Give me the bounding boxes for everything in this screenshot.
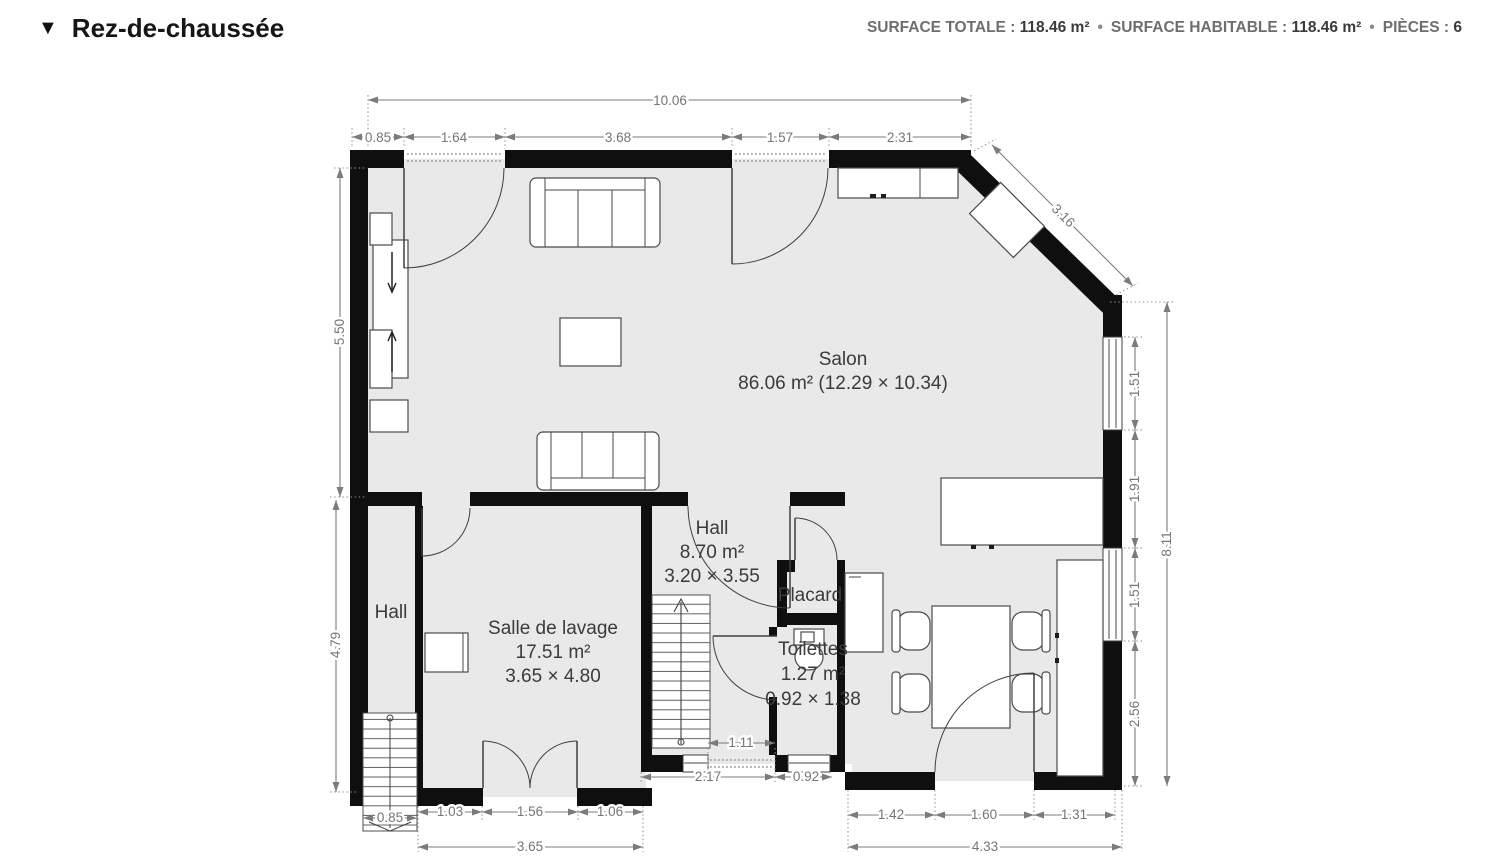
dim-top-2: 1.64: [441, 130, 468, 145]
stat-separator: •: [1369, 19, 1374, 37]
dim-br-total: 4.33: [972, 839, 998, 854]
salon-label: Salon: [819, 349, 868, 370]
dim-right-3: 1.51: [1127, 582, 1142, 608]
toilettes-area: 1.27 m²: [781, 664, 845, 685]
dim-notch-1: 1.11: [728, 735, 753, 750]
dim-top-1: 0.85: [365, 130, 391, 145]
dining-table: [932, 606, 1010, 728]
dim-br-3: 1.31: [1061, 807, 1087, 822]
dim-br-1: 1.42: [878, 807, 904, 822]
salon-details: 86.06 m² (12.29 × 10.34): [738, 373, 948, 394]
dim-bl-3: 1.06: [597, 804, 623, 819]
dim-top-4: 1.57: [767, 130, 793, 145]
dim-br-2: 1.60: [971, 807, 997, 822]
dim-right-2: 1.91: [1127, 476, 1142, 502]
fridge-column: [845, 573, 883, 652]
staircase-central: [652, 595, 710, 748]
stat-pieces: PIÈCES : 6: [1383, 19, 1462, 37]
collapse-triangle-icon[interactable]: ▼: [38, 18, 58, 38]
window-right-lower: [1103, 548, 1122, 641]
dim-right-total: 8.11: [1159, 531, 1174, 556]
page-title: Rez-de-chaussée: [72, 13, 284, 44]
plan-title-group: ▼ Rez-de-chaussée: [38, 13, 284, 44]
window-right-upper: [1103, 337, 1122, 430]
dim-notch-2: 2.17: [695, 769, 721, 784]
kitchen-counter-top: [838, 168, 958, 198]
dim-bl-1: 1.03: [437, 804, 463, 819]
washer: [425, 633, 468, 672]
surface-stats: SURFACE TOTALE : 118.46 m² • SURFACE HAB…: [867, 19, 1462, 37]
hall-center-size: 3.20 × 3.55: [664, 566, 760, 587]
dim-top-3: 3.68: [605, 130, 631, 145]
coffee-table: [560, 318, 621, 366]
hall-center-area: 8.70 m²: [680, 542, 744, 563]
dim-stair: 0.85: [377, 810, 403, 825]
toilettes-label: Toilettes: [778, 639, 848, 660]
stat-separator: •: [1097, 19, 1102, 37]
laundry-area: 17.51 m²: [516, 642, 591, 663]
dim-right-4: 2.56: [1127, 701, 1142, 727]
plan-header: ▼ Rez-de-chaussée SURFACE TOTALE : 118.4…: [0, 0, 1500, 56]
dim-bl-total: 3.65: [517, 839, 543, 854]
dim-bl-2: 1.56: [517, 804, 543, 819]
floorplan-page: ▼ Rez-de-chaussée SURFACE TOTALE : 118.4…: [0, 0, 1500, 867]
stat-surface-habitable: SURFACE HABITABLE : 118.46 m²: [1111, 19, 1361, 37]
placard-label: Placard: [778, 585, 842, 606]
hall-left-label: Hall: [375, 602, 408, 623]
dim-left-upper: 5.50: [332, 319, 347, 345]
laundry-size: 3.65 × 4.80: [505, 666, 601, 687]
dim-left-lower: 4.79: [328, 632, 343, 658]
dim-top-5: 2.31: [887, 130, 913, 145]
dim-right-1: 1.51: [1127, 371, 1142, 397]
floor-plan-canvas: Salon 86.06 m² (12.29 × 10.34) Hall 8.70…: [0, 56, 1500, 867]
dim-top-total: 10.06: [653, 93, 687, 108]
dim-notch-3: 0.92: [793, 769, 819, 784]
sofa-top: [530, 178, 660, 247]
kitchen-counter-right: [1055, 560, 1103, 776]
toilettes-size: 0.92 × 1.38: [765, 689, 861, 710]
sofa-bottom: [537, 432, 659, 490]
stat-surface-totale: SURFACE TOTALE : 118.46 m²: [867, 19, 1090, 37]
laundry-label: Salle de lavage: [488, 618, 618, 639]
kitchen-island: [941, 478, 1103, 549]
hall-center-label: Hall: [696, 518, 729, 539]
